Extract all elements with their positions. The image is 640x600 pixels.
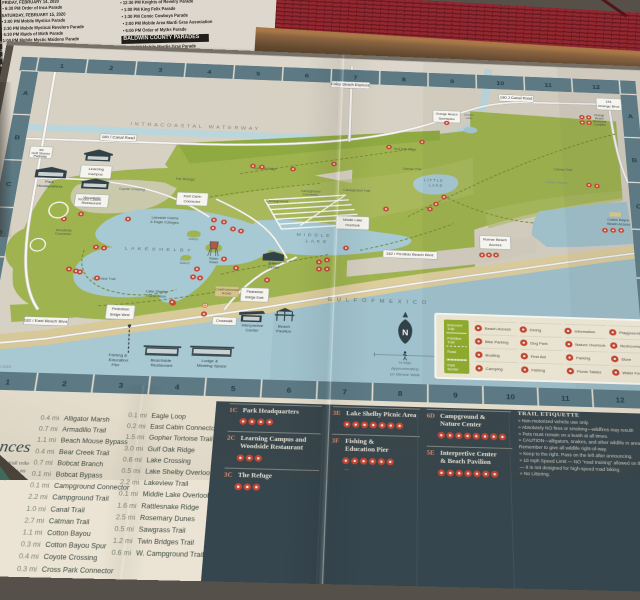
svg-text:Catman Trail: Catman Trail xyxy=(403,167,422,171)
svg-text:Coyote Crossing: Coyote Crossing xyxy=(43,554,98,563)
svg-text:0.3 mi: 0.3 mi xyxy=(20,541,41,549)
svg-text:Pedestrian: Pedestrian xyxy=(112,307,130,312)
svg-text:Island: Island xyxy=(179,261,190,265)
svg-text:Fishing: Fishing xyxy=(531,368,545,373)
svg-text:Catman Trail: Catman Trail xyxy=(553,167,572,171)
svg-text:Island: Island xyxy=(188,237,198,241)
svg-text:Center: Center xyxy=(245,328,259,333)
svg-text:Approximately: Approximately xyxy=(391,366,419,371)
svg-text:0.4 mi: 0.4 mi xyxy=(35,448,55,456)
svg-text:Bridge East: Bridge East xyxy=(245,295,264,300)
svg-text:Picnic Tables: Picnic Tables xyxy=(577,369,602,374)
svg-text:Sportsplex: Sportsplex xyxy=(439,117,456,121)
svg-text:Bear Creek Trail: Bear Creek Trail xyxy=(58,449,109,458)
svg-text:A: A xyxy=(628,114,634,120)
svg-text:12: 12 xyxy=(592,84,601,90)
svg-text:0.3 mi: 0.3 mi xyxy=(16,566,37,574)
svg-text:ROAD: ROAD xyxy=(222,291,232,296)
svg-text:11: 11 xyxy=(544,83,552,89)
svg-text:½ Mile: ½ Mile xyxy=(398,361,411,366)
svg-text:Campground: Campground xyxy=(266,199,289,204)
svg-text:Armadillo Trail: Armadillo Trail xyxy=(62,427,107,435)
svg-text:B: B xyxy=(632,158,638,165)
svg-text:1C: 1C xyxy=(229,407,238,414)
svg-text:0.4 mi: 0.4 mi xyxy=(40,415,60,423)
svg-text:Catman Trail: Catman Trail xyxy=(48,518,90,527)
svg-text:Information: Information xyxy=(574,329,595,334)
svg-text:Water Fountain: Water Fountain xyxy=(622,371,640,376)
svg-text:9: 9 xyxy=(450,79,454,85)
svg-text:10 Minute Walk: 10 Minute Walk xyxy=(390,372,420,377)
svg-text:Nature Center: Nature Center xyxy=(440,421,482,429)
svg-text:Boating: Boating xyxy=(485,353,500,358)
svg-text:6D: 6D xyxy=(427,413,435,420)
svg-text:Campground Trail: Campground Trail xyxy=(52,495,109,504)
svg-text:11: 11 xyxy=(561,395,571,403)
svg-text:Road: Road xyxy=(447,350,456,355)
svg-text:Restrooms: Restrooms xyxy=(620,344,640,349)
svg-text:Dog Park: Dog Park xyxy=(530,341,548,346)
svg-text:Canal Trail: Canal Trail xyxy=(50,506,85,514)
svg-text:The Refuge: The Refuge xyxy=(175,177,195,182)
svg-text:The Refuge: The Refuge xyxy=(238,472,273,480)
svg-text:10: 10 xyxy=(506,393,516,401)
svg-text:1.1 mi: 1.1 mi xyxy=(36,437,56,445)
svg-text:Alligator Marsh: Alligator Marsh xyxy=(63,416,110,424)
svg-text:0.7 mi: 0.7 mi xyxy=(33,460,53,468)
svg-text:5E: 5E xyxy=(427,450,436,457)
svg-text:2.2 mi: 2.2 mi xyxy=(28,494,48,502)
svg-text:Restaurant: Restaurant xyxy=(150,363,172,368)
svg-text:Cotton Bayou Spur: Cotton Bayou Spur xyxy=(45,542,107,551)
svg-text:Border: Border xyxy=(448,367,459,372)
svg-text:Parking: Parking xyxy=(576,356,591,361)
svg-text:Tower: Tower xyxy=(209,260,219,264)
svg-text:8: 8 xyxy=(402,77,406,83)
svg-text:Cotton Bayou: Cotton Bayou xyxy=(546,180,568,185)
svg-text:& Beach Pavilion: & Beach Pavilion xyxy=(440,458,491,467)
svg-text:Meeting Space: Meeting Space xyxy=(197,363,227,368)
svg-text:Bobcat Branch: Bobcat Branch xyxy=(57,460,104,469)
svg-text:3C: 3C xyxy=(224,472,233,480)
svg-text:Camping: Camping xyxy=(486,367,503,372)
svg-text:LITTLE: LITTLE xyxy=(424,178,444,183)
svg-text:Diving: Diving xyxy=(530,328,542,333)
svg-text:Connector: Connector xyxy=(55,232,72,237)
svg-text:Beach Access: Beach Access xyxy=(485,327,512,332)
svg-text:Distances: Distances xyxy=(0,436,32,456)
svg-text:East Cabin: East Cabin xyxy=(184,194,202,199)
svg-text:Pedestrian: Pedestrian xyxy=(246,289,264,294)
svg-text:Beach Access: Beach Access xyxy=(607,222,631,227)
svg-text:Trail: Trail xyxy=(447,340,454,345)
svg-text:Picnic Area: Picnic Area xyxy=(146,294,166,299)
svg-text:9: 9 xyxy=(453,392,458,400)
svg-text:Lake: Lake xyxy=(466,116,473,120)
svg-text:12: 12 xyxy=(615,397,625,405)
svg-text:» No Littering.: » No Littering. xyxy=(520,472,550,478)
svg-text:2.7 mi: 2.7 mi xyxy=(24,517,45,525)
svg-text:N: N xyxy=(402,330,408,338)
svg-text:Bobcat Bypass: Bobcat Bypass xyxy=(55,472,103,481)
svg-text:Jan 2019: Jan 2019 xyxy=(0,364,12,369)
svg-text:Pavilion: Pavilion xyxy=(276,329,292,334)
svg-text:2C: 2C xyxy=(227,435,236,442)
svg-text:Access: Access xyxy=(489,243,502,247)
svg-text:Trail: Trail xyxy=(447,327,454,332)
svg-text:8: 8 xyxy=(398,390,403,398)
svg-text:Campus: Campus xyxy=(88,172,104,176)
svg-text:181: 181 xyxy=(605,100,612,104)
svg-text:0.4 mi: 0.4 mi xyxy=(18,553,39,561)
svg-text:Playground: Playground xyxy=(619,331,640,336)
svg-text:0.7 mi: 0.7 mi xyxy=(38,426,58,434)
svg-text:First Aid: First Aid xyxy=(531,355,546,360)
svg-text:10: 10 xyxy=(496,81,505,87)
svg-text:0.1 mi: 0.1 mi xyxy=(31,471,51,479)
svg-text:Woods Cabins: Woods Cabins xyxy=(78,197,102,202)
svg-text:1.1 mi: 1.1 mi xyxy=(22,529,43,537)
svg-text:Store: Store xyxy=(621,357,631,362)
svg-text:1.0 mi: 1.0 mi xyxy=(26,506,47,514)
svg-text:C: C xyxy=(636,203,640,210)
svg-text:Crosswalk: Crosswalk xyxy=(216,319,234,324)
svg-text:Connector: Connector xyxy=(183,199,200,203)
svg-text:Bike Parking: Bike Parking xyxy=(485,340,509,345)
svg-text:0.1 mi: 0.1 mi xyxy=(29,482,49,490)
svg-text:Complex: Complex xyxy=(594,123,607,127)
svg-text:Center: Center xyxy=(268,265,280,270)
svg-text:LAKE: LAKE xyxy=(429,183,444,187)
svg-text:Cotton Bayou: Cotton Bayou xyxy=(46,530,91,539)
svg-text:Romar Beach: Romar Beach xyxy=(483,237,507,242)
svg-text:Bridge West: Bridge West xyxy=(110,312,130,317)
svg-text:Parkway: Parkway xyxy=(33,154,48,158)
svg-text:Learning: Learning xyxy=(88,167,104,171)
